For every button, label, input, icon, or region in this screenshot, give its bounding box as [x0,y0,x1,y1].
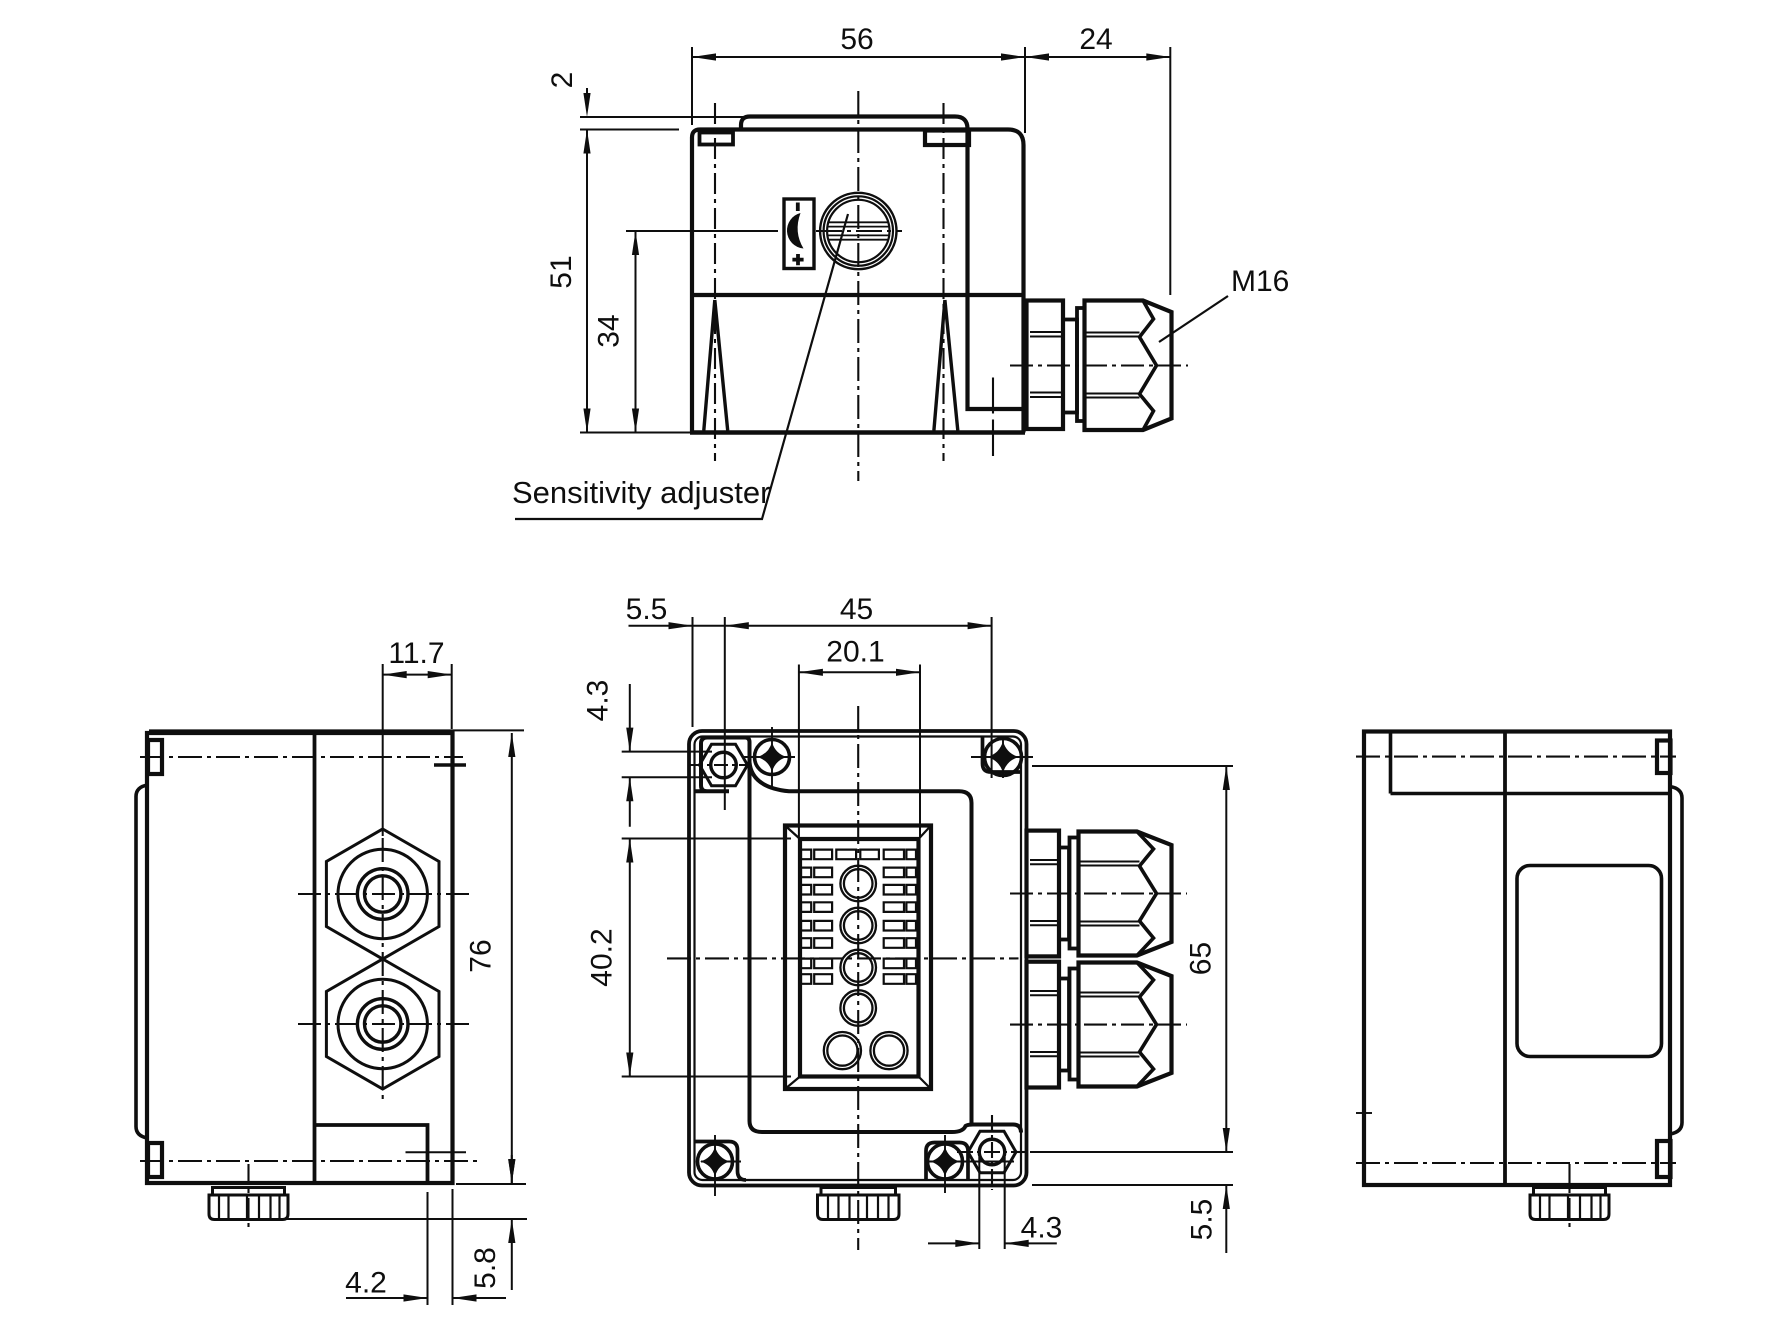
svg-text:5.5: 5.5 [1186,1199,1219,1241]
svg-text:76: 76 [465,939,498,972]
svg-text:4.2: 4.2 [345,1267,387,1300]
svg-text:34: 34 [593,314,626,347]
svg-text:45: 45 [840,593,873,626]
svg-text:65: 65 [1185,942,1218,975]
svg-text:4.3: 4.3 [582,680,615,722]
svg-text:56: 56 [840,23,873,56]
svg-text:40.2: 40.2 [586,928,619,986]
svg-text:5.8: 5.8 [469,1247,502,1289]
svg-text:M16: M16 [1231,265,1289,298]
svg-text:11.7: 11.7 [388,637,444,670]
svg-text:5.5: 5.5 [626,593,668,626]
svg-text:4.3: 4.3 [1021,1212,1063,1245]
svg-text:Sensitivity adjuster: Sensitivity adjuster [512,475,770,510]
svg-text:51: 51 [545,255,578,288]
svg-text:2: 2 [546,72,579,89]
svg-text:20.1: 20.1 [826,636,884,669]
svg-text:24: 24 [1079,23,1112,56]
